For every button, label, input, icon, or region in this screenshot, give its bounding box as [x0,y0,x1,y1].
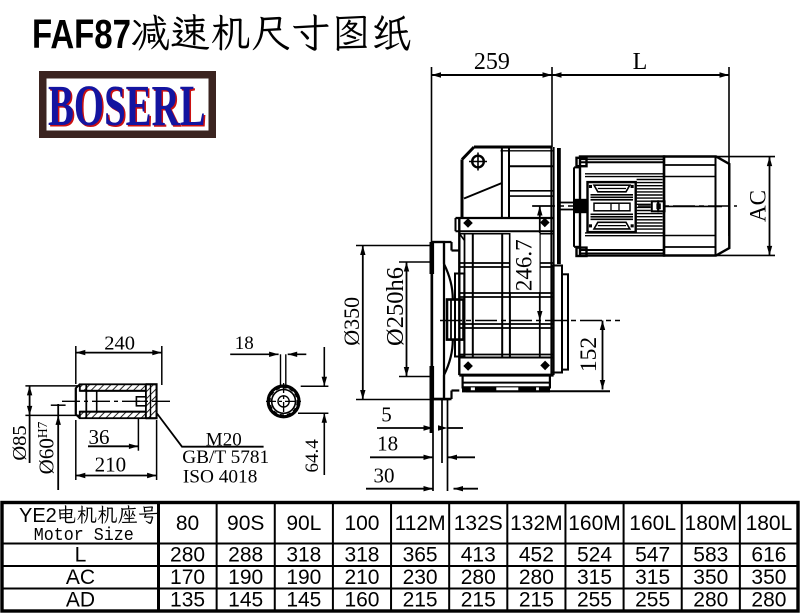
svg-text:AC: AC [66,566,95,589]
svg-text:315: 315 [635,566,670,589]
svg-text:160M: 160M [568,512,621,535]
svg-text:215: 215 [403,589,438,612]
svg-text:L: L [633,49,648,75]
svg-text:365: 365 [403,544,438,567]
svg-text:Ø250h6: Ø250h6 [382,267,409,346]
svg-text:190: 190 [228,566,263,589]
svg-text:30: 30 [374,464,395,488]
svg-text:90L: 90L [286,512,321,535]
svg-text:524: 524 [577,544,612,567]
svg-text:315: 315 [577,566,612,589]
svg-text:160L: 160L [629,512,676,535]
svg-text:210: 210 [95,452,127,476]
svg-text:318: 318 [344,544,379,567]
svg-text:BOSERL: BOSERL [48,73,206,138]
svg-text:210: 210 [344,566,379,589]
svg-text:160: 160 [344,589,379,612]
svg-text:246.7: 246.7 [512,239,537,291]
svg-text:280: 280 [519,566,554,589]
svg-text:Ø350: Ø350 [339,297,364,346]
svg-text:288: 288 [228,544,263,567]
svg-text:112M: 112M [395,512,446,535]
svg-text:132M: 132M [510,512,563,535]
svg-text:18: 18 [235,333,254,354]
svg-text:170: 170 [170,566,205,589]
svg-text:FAF87: FAF87 [32,11,131,57]
svg-text:255: 255 [577,589,612,612]
svg-text:Motor Size: Motor Size [34,526,134,546]
svg-text:280: 280 [461,566,496,589]
svg-text:145: 145 [286,589,321,612]
svg-text:AD: AD [66,589,95,612]
svg-text:259: 259 [474,49,510,75]
svg-text:L: L [75,544,87,567]
svg-text:Ø85: Ø85 [9,425,31,460]
svg-text:180M: 180M [685,512,738,535]
svg-text:413: 413 [461,544,496,567]
svg-text:547: 547 [635,544,670,567]
svg-text:132S: 132S [454,512,503,535]
svg-text:ISO 4018: ISO 4018 [183,466,257,487]
svg-text:5: 5 [381,403,392,427]
svg-text:80: 80 [176,512,199,535]
svg-text:452: 452 [519,544,554,567]
svg-text:GB/T 5781: GB/T 5781 [182,447,269,468]
svg-text:280: 280 [170,544,205,567]
svg-text:350: 350 [693,566,728,589]
svg-text:255: 255 [635,589,670,612]
svg-text:230: 230 [403,566,438,589]
svg-text:135: 135 [170,589,205,612]
svg-text:18: 18 [377,432,398,456]
svg-text:145: 145 [228,589,263,612]
svg-text:350: 350 [751,566,786,589]
svg-text:215: 215 [461,589,496,612]
svg-text:190: 190 [286,566,321,589]
svg-text:AC: AC [746,190,771,222]
svg-text:583: 583 [693,544,728,567]
svg-text:318: 318 [286,544,321,567]
svg-text:280: 280 [693,589,728,612]
svg-text:215: 215 [519,589,554,612]
svg-text:616: 616 [751,544,786,567]
svg-text:280: 280 [751,589,786,612]
svg-text:240: 240 [104,332,135,354]
svg-text:YE2: YE2 [19,505,57,527]
svg-text:64.4: 64.4 [302,439,323,473]
svg-text:100: 100 [344,512,379,535]
svg-text:152: 152 [576,337,602,372]
svg-text:180L: 180L [746,512,793,535]
svg-text:36: 36 [89,425,110,449]
svg-text:90S: 90S [227,512,264,535]
